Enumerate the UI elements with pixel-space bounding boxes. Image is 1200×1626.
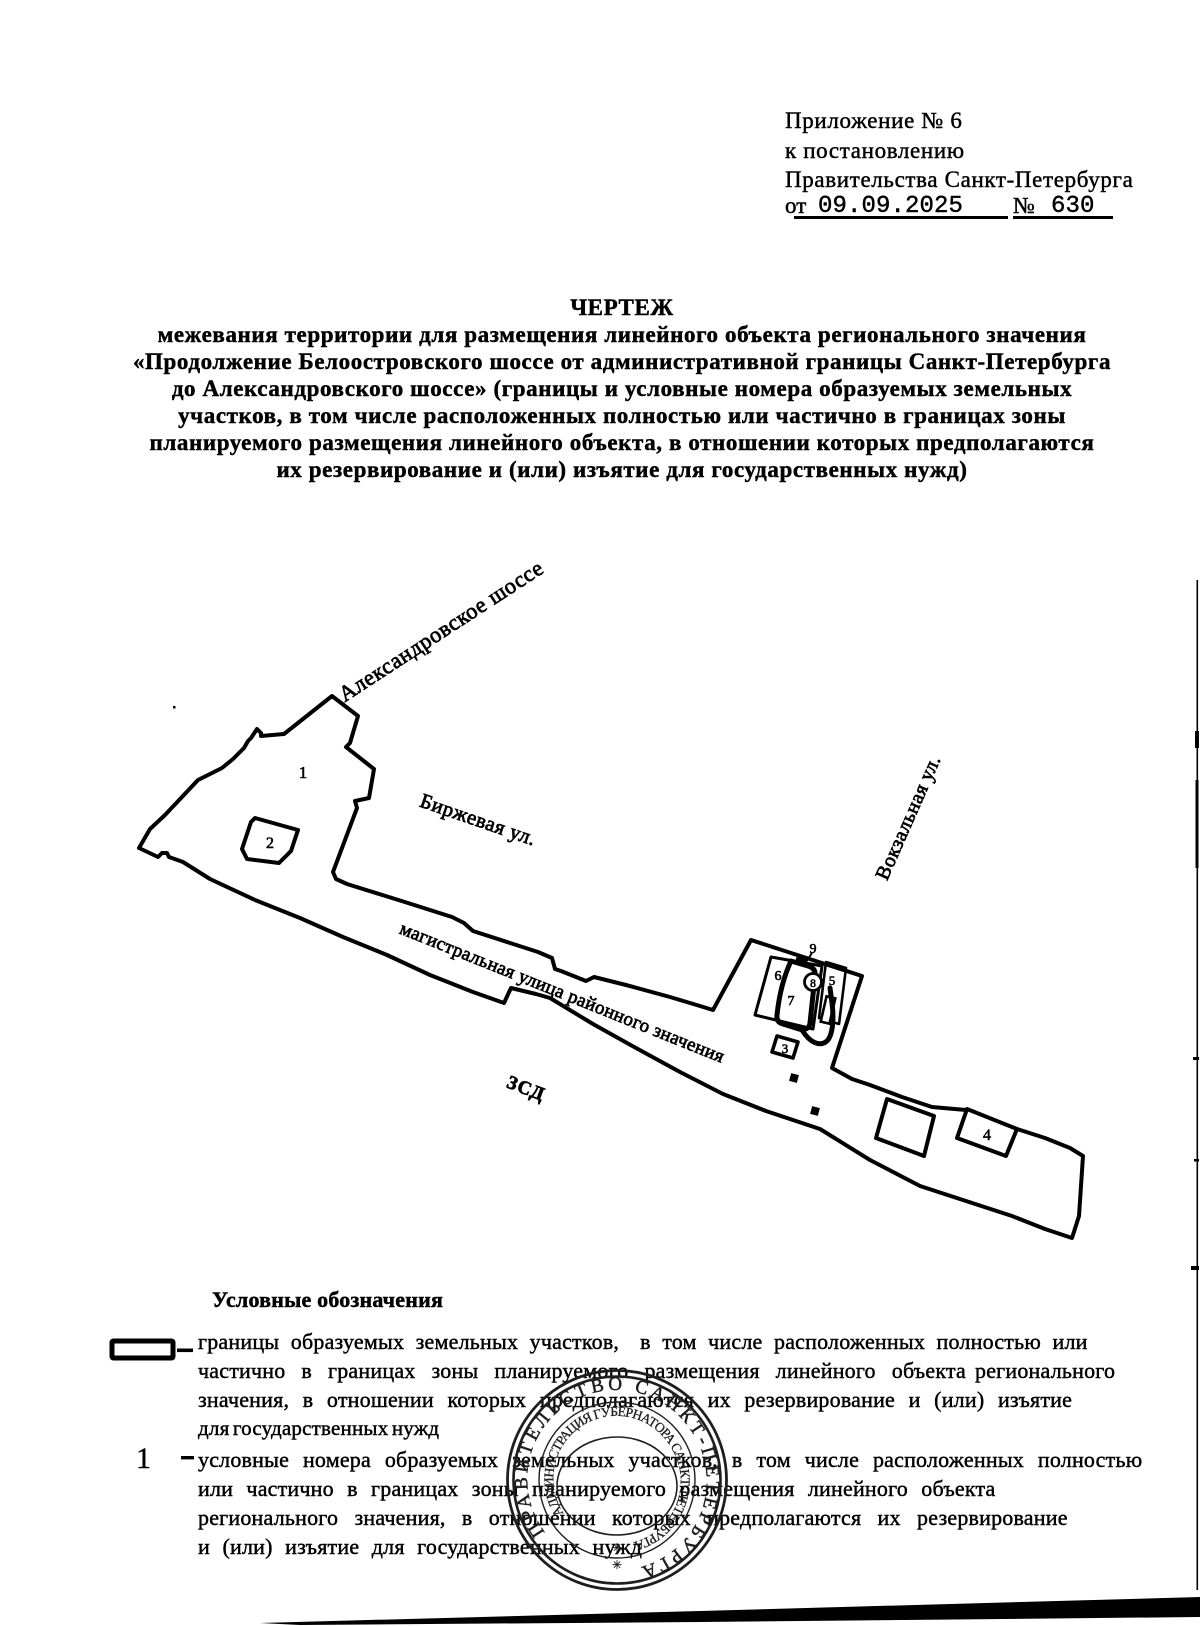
svg-text:Александровское шоссе: Александровское шоссе xyxy=(334,555,548,707)
svg-text:✳: ✳ xyxy=(612,1558,622,1572)
svg-text:ЗСД: ЗСД xyxy=(504,1072,548,1106)
svg-text:6: 6 xyxy=(775,969,782,984)
svg-text:Вокзальная ул.: Вокзальная ул. xyxy=(871,752,945,883)
svg-text:8: 8 xyxy=(810,978,816,990)
svg-text:2: 2 xyxy=(266,835,274,852)
svg-text:Биржевая ул.: Биржевая ул. xyxy=(417,789,539,850)
svg-text:✳: ✳ xyxy=(612,1541,622,1555)
svg-text:магистральная улица районного: магистральная улица районного значения xyxy=(397,918,728,1067)
svg-text:5: 5 xyxy=(829,973,836,988)
svg-text:7: 7 xyxy=(788,994,795,1009)
svg-text:1: 1 xyxy=(299,763,308,782)
svg-text:3: 3 xyxy=(782,1041,789,1056)
svg-text:9: 9 xyxy=(810,942,817,957)
svg-text:4: 4 xyxy=(983,1127,991,1144)
svg-text:АДМИНИСТРАЦИЯ ГУБЕРНАТОРА САНК: АДМИНИСТРАЦИЯ ГУБЕРНАТОРА САНКТ-ПЕТЕРБУР… xyxy=(541,1404,693,1554)
